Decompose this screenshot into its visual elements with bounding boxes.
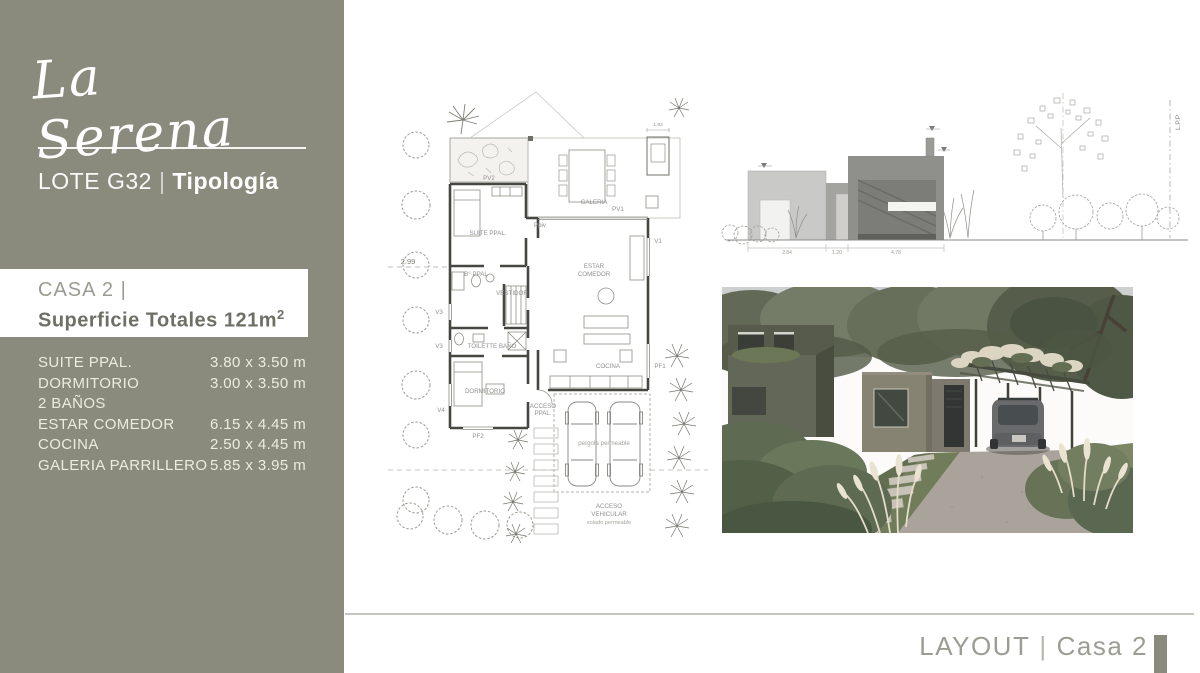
lot-type: Tipología (172, 168, 278, 194)
footer-separator: | (1030, 631, 1056, 661)
svg-text:TOILETTE BAÑO: TOILETTE BAÑO (468, 343, 517, 350)
tree-sketch (1014, 98, 1108, 198)
room-row: COCINA2.50 x 4.45 m (38, 435, 318, 456)
room-dim: 5.85 x 3.95 m (210, 456, 318, 477)
floor-plan: PV2 SUITE PPAL. B° PPAL VESTIDOR GALERIA… (388, 88, 708, 543)
render-photo (722, 287, 1133, 533)
room-name: SUITE PPAL. (38, 353, 210, 374)
room-dim: 3.80 x 3.50 m (210, 353, 318, 374)
footer-divider (345, 613, 1194, 615)
room-dim: 3.00 x 3.50 m (210, 374, 318, 395)
layout-slide: La Serena LOTE G32|Tipología CASA 2 | Su… (0, 0, 1200, 673)
room-name: GALERIA PARRILLERO (38, 456, 210, 477)
svg-text:1.20: 1.20 (832, 250, 842, 256)
svg-text:ACCESO: ACCESO (596, 503, 622, 510)
grass-icon (503, 98, 696, 543)
svg-text:PF1: PF1 (654, 363, 666, 370)
patio (450, 92, 584, 182)
svg-text:Ppiv: Ppiv (534, 222, 547, 229)
room-row: GALERIA PARRILLERO5.85 x 3.95 m (38, 456, 318, 477)
svg-text:2.84: 2.84 (782, 250, 792, 256)
svg-text:PPAL.: PPAL. (534, 410, 551, 417)
brand-divider (38, 147, 306, 149)
room-row: SUITE PPAL.3.80 x 3.50 m (38, 353, 318, 374)
footer-title: LAYOUT|Casa 2 (919, 631, 1148, 662)
room-row: DORMITORIO3.00 x 3.50 m (38, 374, 318, 395)
room-row: 2 BAÑOS (38, 394, 318, 415)
svg-text:ACCESO: ACCESO (530, 403, 556, 410)
room-name: ESTAR COMEDOR (38, 415, 210, 436)
carport (388, 267, 708, 534)
palm-icon (447, 104, 479, 134)
svg-text:PV2: PV2 (483, 175, 495, 182)
elevation-volumes (748, 126, 950, 240)
svg-text:1.93: 1.93 (653, 122, 663, 128)
tree-icon (397, 132, 533, 539)
svg-text:V4: V4 (437, 407, 445, 414)
svg-text:PF2: PF2 (472, 433, 484, 440)
svg-text:solado permeable: solado permeable (587, 520, 631, 526)
room-dim: 6.15 x 4.45 m (210, 415, 318, 436)
svg-text:VEHICULAR: VEHICULAR (591, 511, 627, 518)
room-dim (210, 394, 318, 415)
windows (449, 217, 650, 430)
room-dim: 2.50 x 4.45 m (210, 435, 318, 456)
casa-subtitle: Superficie Totales 121m2 (38, 302, 308, 334)
casa-title: CASA 2 | (38, 278, 308, 302)
casa-superscript: 2 (277, 307, 285, 322)
accent-bar (1154, 635, 1167, 673)
svg-text:GALERIA: GALERIA (581, 199, 609, 206)
svg-text:VESTIDOR: VESTIDOR (496, 290, 528, 297)
sidebar: La Serena LOTE G32|Tipología CASA 2 | Su… (0, 0, 344, 673)
svg-text:4.78: 4.78 (891, 250, 901, 256)
svg-text:V3: V3 (435, 309, 443, 316)
casa-subtitle-text: Superficie Totales 121m (38, 310, 277, 332)
room-name: DORMITORIO (38, 374, 210, 395)
lot-title: LOTE G32|Tipología (38, 168, 279, 195)
footer-value: Casa 2 (1057, 631, 1148, 661)
svg-text:V3: V3 (435, 343, 443, 350)
svg-text:pergola permeable: pergola permeable (578, 440, 630, 447)
svg-text:ESTAR: ESTAR (584, 263, 605, 270)
footer-label: LAYOUT (919, 631, 1030, 661)
lot-number: LOTE G32 (38, 168, 152, 194)
lot-separator: | (152, 168, 172, 194)
room-list: SUITE PPAL.3.80 x 3.50 m DORMITORIO3.00 … (38, 353, 318, 476)
paving (534, 428, 558, 534)
svg-text:V1: V1 (654, 238, 662, 245)
lpp-label: L.P.P (1175, 115, 1182, 130)
svg-text:SUITE PPAL.: SUITE PPAL. (469, 230, 506, 237)
svg-text:2.99: 2.99 (401, 257, 416, 266)
casa-box: CASA 2 | Superficie Totales 121m2 (0, 269, 308, 337)
elevation-drawing: 2.84 1.20 4.78 L.P.P (718, 88, 1196, 256)
photo-tint (722, 287, 1133, 533)
svg-text:PV1: PV1 (612, 206, 624, 213)
svg-text:DORMITORIO: DORMITORIO (465, 388, 505, 395)
brand-logo: La Serena (30, 32, 318, 171)
svg-text:COMEDOR: COMEDOR (578, 271, 611, 278)
svg-text:COCINA: COCINA (596, 363, 621, 370)
svg-text:B° PPAL: B° PPAL (464, 271, 488, 278)
room-row: ESTAR COMEDOR6.15 x 4.45 m (38, 415, 318, 436)
room-name: 2 BAÑOS (38, 394, 210, 415)
room-name: COCINA (38, 435, 210, 456)
plan-labels: PV2 SUITE PPAL. B° PPAL VESTIDOR GALERIA… (401, 122, 667, 526)
